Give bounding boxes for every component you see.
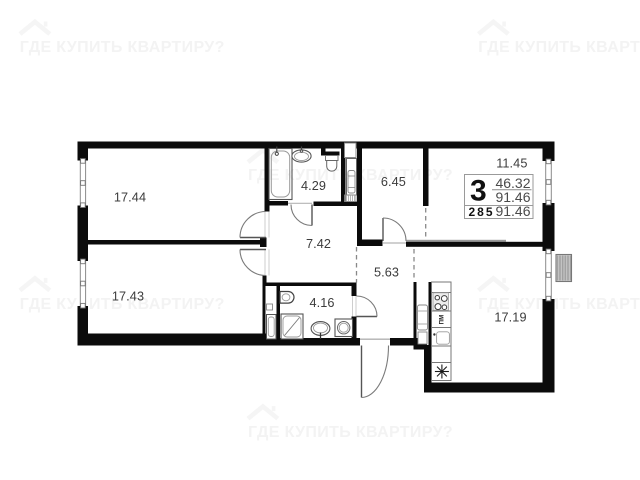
svg-text:6.45: 6.45 bbox=[381, 175, 406, 189]
svg-text:ПМ: ПМ bbox=[439, 315, 446, 325]
svg-text:4.29: 4.29 bbox=[301, 179, 326, 193]
svg-text:7.42: 7.42 bbox=[306, 237, 331, 251]
svg-text:ГДЕ КУПИТЬ КВАРТИРУ?: ГДЕ КУПИТЬ КВАРТИРУ? bbox=[20, 39, 225, 56]
svg-text:ГДЕ КУПИТЬ КВАРТИРУ?: ГДЕ КУПИТЬ КВАРТИРУ? bbox=[248, 424, 453, 441]
svg-text:11.45: 11.45 bbox=[496, 157, 527, 171]
svg-text:17.43: 17.43 bbox=[112, 290, 144, 304]
svg-text:4.16: 4.16 bbox=[309, 296, 334, 310]
svg-text:3: 3 bbox=[470, 175, 487, 208]
svg-text:17.44: 17.44 bbox=[114, 190, 146, 204]
svg-text:5.63: 5.63 bbox=[374, 266, 399, 280]
svg-text:ГДЕ КУПИТЬ КВАРТИРУ?: ГДЕ КУПИТЬ КВАРТИРУ? bbox=[248, 167, 453, 184]
svg-text:ГДЕ КУПИТЬ КВАРТИРУ?: ГДЕ КУПИТЬ КВАРТИРУ? bbox=[478, 39, 640, 56]
svg-text:91.46: 91.46 bbox=[495, 203, 530, 219]
svg-text:285: 285 bbox=[469, 205, 495, 219]
svg-text:17.19: 17.19 bbox=[494, 310, 526, 324]
